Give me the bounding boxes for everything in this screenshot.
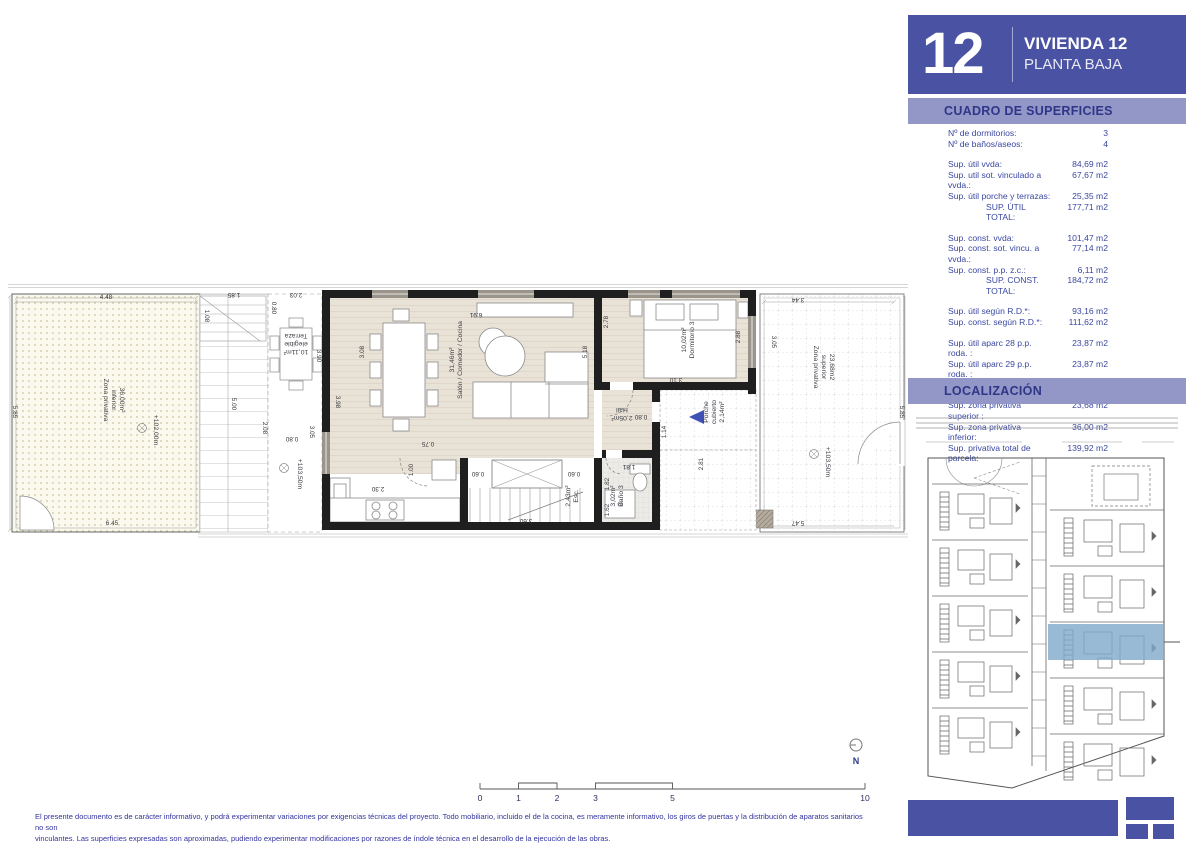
dimension-label: 3.60 [519, 517, 532, 524]
dimension-label: 5.18 [582, 345, 589, 358]
room-label: inferior [110, 390, 117, 412]
surface-row: SUP. ÚTIL TOTAL:177,71 m2 [908, 202, 1186, 223]
surface-group: Sup. const. vvda:101,47 m2Sup. const. so… [908, 233, 1186, 297]
logo-block [1126, 797, 1174, 820]
room-label: 23,68m2 [828, 354, 835, 381]
sheet-header: 12 VIVIENDA 12 PLANTA BAJA [908, 15, 1186, 94]
dimension-label: 1.14 [661, 425, 668, 438]
dimension-label: 1.08 [203, 310, 210, 323]
stove [366, 500, 404, 520]
dimension-label: 2.30 [371, 485, 384, 492]
dimension-label: 2.81 [698, 457, 705, 470]
header-divider [1012, 27, 1013, 82]
dimension-label: 1.82 [604, 477, 611, 490]
unit-title: VIVIENDA 12 [1024, 33, 1127, 55]
room-label: Salón / Comedor / Cocina [457, 321, 464, 399]
floor-subtitle: PLANTA BAJA [1024, 55, 1127, 75]
dimension-label: 0.80 [634, 413, 647, 420]
zona-privativa-superior [755, 294, 905, 532]
dimension-label: 0.75 [421, 440, 434, 447]
surface-row: Nº de baños/aseos:4 [908, 139, 1186, 150]
dimension-label: 3.05 [770, 336, 777, 349]
room-label: Esc. [573, 489, 580, 502]
scale-label: 1 [516, 793, 521, 803]
dimension-label: 3.90 [315, 350, 322, 363]
room-label: Hall [616, 406, 628, 413]
room-label: Zona privativa [812, 346, 819, 389]
room-label: +102,00m [152, 415, 159, 446]
room-label: 36,00m² [118, 388, 125, 414]
scale-label: 5 [670, 793, 675, 803]
room-label: 10,02m² [681, 327, 688, 353]
brand-logo [908, 797, 1186, 839]
sideboard [477, 303, 573, 317]
room-label: Zona privativa [102, 379, 109, 422]
roundabout [946, 458, 1020, 494]
scale-label: 0 [478, 793, 483, 803]
street-lines [916, 418, 1178, 442]
surface-row: Sup. útil vvda:84,69 m2 [908, 159, 1186, 170]
room-label: 2,43m² [565, 485, 572, 507]
site-plan [912, 406, 1182, 791]
room-label: +103,50m [824, 447, 831, 478]
room-label: Terraza [284, 332, 307, 339]
surfaces-band: CUADRO DE SUPERFICIES [908, 98, 1186, 124]
dimension-label: 3.98 [334, 396, 341, 409]
dimension-label: 6.91 [469, 311, 482, 318]
surface-row: Sup. útil aparc 29 p.p. roda. :23,87 m2 [908, 359, 1186, 380]
room-label: Porche [703, 401, 710, 423]
logo-bar [908, 800, 1118, 836]
room-label: 10,11m² [283, 348, 308, 355]
dimension-label: 2.78 [603, 315, 610, 328]
surface-row: SUP. CONST. TOTAL:184,72 m2 [908, 275, 1186, 296]
room-label: 2,05m² [611, 414, 633, 421]
dimension-label: 0.80 [270, 302, 277, 315]
unit-number: 12 [922, 24, 983, 84]
north-indicator: N [845, 736, 867, 770]
tile-pad [755, 510, 773, 528]
disclaimer: El presente documento es de carácter inf… [35, 811, 870, 844]
scale-bar: 0123510 [472, 776, 872, 806]
disclaimer-line: vinculantes. Las superficies expresadas … [35, 833, 870, 844]
dimension-label: 6.45 [106, 520, 119, 527]
dimension-label: 0.60 [567, 470, 580, 477]
surface-row: Sup. útil aparc 28 p.p. roda. :23,87 m2 [908, 338, 1186, 359]
location-band: LOCALIZACIÓN [908, 378, 1186, 404]
dimension-label: 4.48 [100, 294, 113, 301]
surface-row: Sup. útil según R.D.*:93,16 m2 [908, 306, 1186, 317]
dimension-label: 5.85 [11, 406, 18, 419]
room-label: +103,50m [296, 459, 303, 490]
room-label: Dormitorio 3 [689, 321, 696, 358]
room-label: 31,46m² [449, 347, 456, 373]
dimension-label: 5.47 [791, 519, 804, 526]
left-units [932, 484, 1028, 754]
walkway-strip [200, 294, 268, 532]
armchair [485, 336, 525, 376]
scale-label: 3 [593, 793, 598, 803]
dimension-label: 2.08 [261, 422, 268, 435]
nightstand [630, 300, 642, 316]
surface-row: Sup. const. sot. vincu. a vvda.:77,14 m2 [908, 243, 1186, 264]
room-label: 2,14m² [719, 401, 726, 423]
dimension-label: 0.80 [285, 435, 298, 442]
surface-group: Sup. útil según R.D.*:93,16 m2Sup. const… [908, 306, 1186, 327]
dimension-label: 3.05 [308, 426, 315, 439]
surface-row: Sup. util sot. vinculado a vvda.:67,67 m… [908, 170, 1186, 191]
room-label: Baño 3 [618, 485, 625, 507]
surface-group: Nº de dormitorios:3Nº de baños/aseos:4 [908, 128, 1186, 149]
room-label: elegible [284, 340, 308, 347]
plan-sheet: Zona privativainferior36,00m²+102,00mTer… [0, 0, 1200, 854]
fridge [432, 460, 456, 480]
north-label: N [853, 756, 860, 766]
dimension-label: 1.62 [604, 503, 611, 516]
nightstand [738, 302, 748, 318]
dimension-label: 5.85 [898, 406, 905, 419]
surface-row: Sup. const. vvda:101,47 m2 [908, 233, 1186, 244]
terraza-elegible [268, 294, 322, 532]
scale-label: 2 [555, 793, 560, 803]
room-label: cubierto [711, 400, 718, 424]
room-label: superior [820, 355, 827, 380]
dimension-label: 1.00 [408, 463, 415, 476]
door-opening [896, 420, 905, 466]
surface-row: Sup. const. p.p. z.c.:6,11 m2 [908, 265, 1186, 276]
dimension-label: 2.88 [735, 330, 742, 343]
surface-row: Nº de dormitorios:3 [908, 128, 1186, 139]
toilet [633, 473, 647, 491]
surface-row: Sup. const. según R.D.*:111,62 m2 [908, 317, 1186, 328]
dimension-label: 3.10 [669, 376, 682, 383]
dimension-label: 1.81 [622, 463, 635, 470]
room-label: 3,02m² [610, 485, 617, 507]
dimension-label: 3.08 [359, 345, 366, 358]
dimension-label: 2.03 [289, 291, 302, 298]
dimension-label: 3.44 [791, 296, 804, 303]
pool-area [1092, 466, 1150, 506]
highlighted-unit [1048, 624, 1164, 660]
dimension-label: 1.85 [227, 291, 240, 298]
surface-group: Sup. útil vvda:84,69 m2Sup. util sot. vi… [908, 159, 1186, 223]
logo-block [1153, 824, 1174, 839]
disclaimer-line: El presente documento es de carácter inf… [35, 811, 870, 833]
surface-row: Sup. útil porche y terrazas:25,35 m2 [908, 191, 1186, 202]
dimension-label: 0.60 [471, 470, 484, 477]
central-road [1032, 458, 1046, 771]
scale-label: 10 [860, 793, 870, 803]
logo-block [1126, 824, 1148, 839]
dimension-label: 5.00 [230, 398, 237, 411]
floor-plan-drawing: Zona privativainferior36,00m²+102,00mTer… [8, 282, 908, 538]
